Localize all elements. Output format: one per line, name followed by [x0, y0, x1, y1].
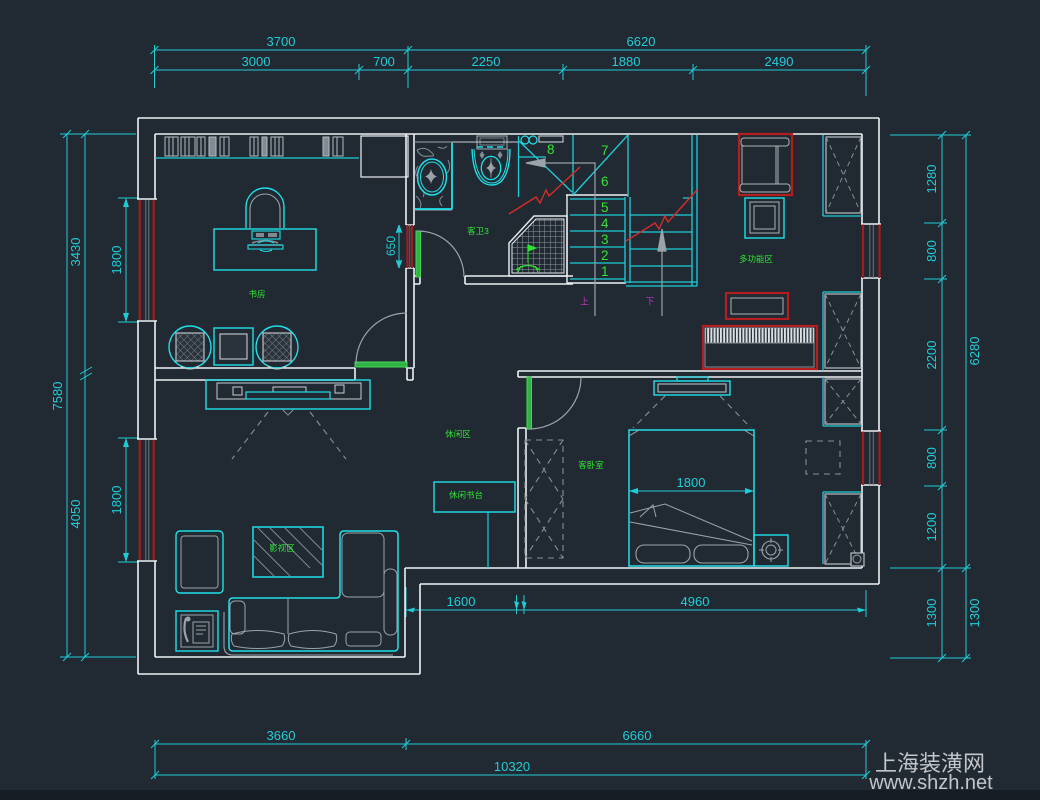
svg-text:5: 5 — [601, 200, 609, 215]
svg-text:1600: 1600 — [447, 594, 476, 609]
svg-text:10320: 10320 — [494, 759, 530, 774]
svg-text:3000: 3000 — [242, 54, 271, 69]
svg-text:1800: 1800 — [677, 475, 706, 490]
svg-text:影视区: 影视区 — [269, 543, 295, 553]
svg-text:3430: 3430 — [68, 238, 83, 267]
svg-text:3: 3 — [601, 232, 609, 247]
svg-text:800: 800 — [924, 240, 939, 262]
svg-text:6620: 6620 — [627, 34, 656, 49]
svg-text:2: 2 — [601, 248, 609, 263]
svg-text:7: 7 — [601, 143, 609, 158]
svg-text:8: 8 — [547, 142, 555, 157]
svg-text:6660: 6660 — [623, 728, 652, 743]
svg-text:1: 1 — [601, 264, 609, 279]
svg-text:3660: 3660 — [267, 728, 296, 743]
svg-text:1280: 1280 — [924, 165, 939, 194]
svg-text:6280: 6280 — [967, 337, 982, 366]
svg-text:上: 上 — [580, 297, 589, 307]
svg-text:休闲书台: 休闲书台 — [449, 490, 483, 500]
svg-text:6: 6 — [601, 174, 609, 189]
svg-text:多功能区: 多功能区 — [739, 254, 774, 264]
svg-text:650: 650 — [384, 236, 398, 256]
svg-text:1800: 1800 — [109, 486, 124, 515]
svg-text:休闲区: 休闲区 — [445, 429, 471, 439]
svg-text:www.shzh.net: www.shzh.net — [868, 772, 993, 794]
svg-text:7580: 7580 — [50, 382, 65, 411]
svg-text:2200: 2200 — [924, 341, 939, 370]
svg-text:2250: 2250 — [472, 54, 501, 69]
svg-text:3700: 3700 — [267, 34, 296, 49]
svg-text:客卧室: 客卧室 — [578, 460, 604, 470]
svg-text:1300: 1300 — [967, 599, 982, 628]
svg-text:下: 下 — [645, 297, 654, 307]
svg-text:4960: 4960 — [681, 594, 710, 609]
svg-text:1200: 1200 — [924, 513, 939, 542]
svg-text:1300: 1300 — [924, 599, 939, 628]
svg-text:800: 800 — [924, 447, 939, 469]
svg-text:700: 700 — [373, 54, 395, 69]
svg-text:1800: 1800 — [109, 246, 124, 275]
svg-text:4050: 4050 — [68, 500, 83, 529]
svg-text:4: 4 — [601, 216, 609, 231]
svg-text:书房: 书房 — [248, 289, 265, 299]
svg-text:客卫3: 客卫3 — [467, 226, 489, 236]
svg-text:2490: 2490 — [765, 54, 794, 69]
svg-text:1880: 1880 — [612, 54, 641, 69]
